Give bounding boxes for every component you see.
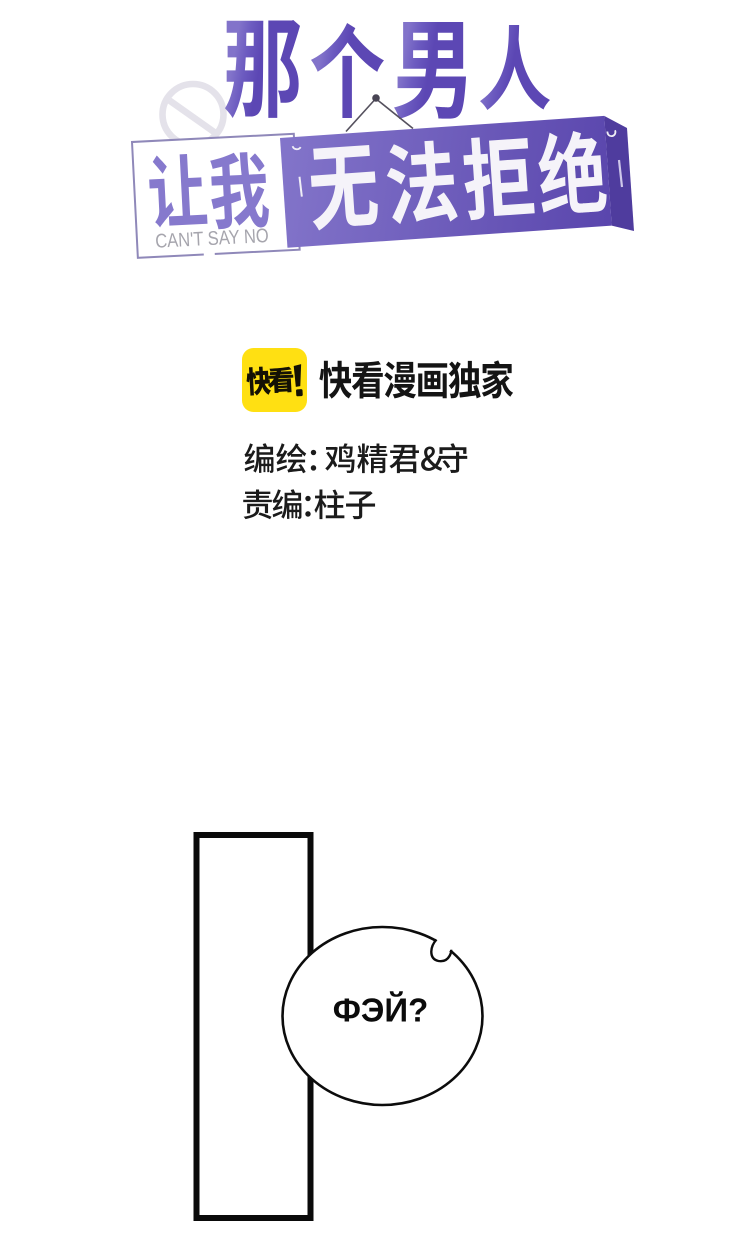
svg-text:ФЭЙ?: ФЭЙ? <box>333 991 429 1029</box>
